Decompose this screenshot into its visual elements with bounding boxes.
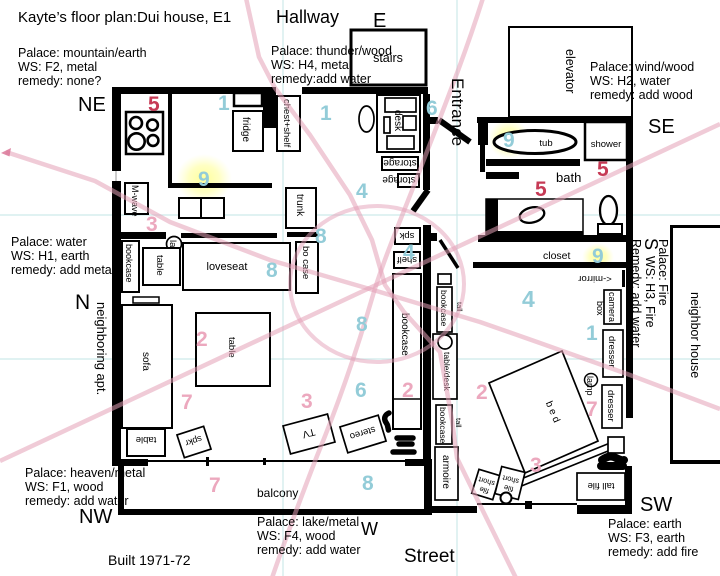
svg-text:elevator: elevator xyxy=(563,49,577,93)
svg-text:2: 2 xyxy=(476,381,488,404)
svg-text:Entrance: Entrance xyxy=(448,78,467,146)
svg-text:4: 4 xyxy=(356,180,368,203)
svg-text:Palace: thunder/wood: Palace: thunder/wood xyxy=(271,44,392,58)
svg-text:SW: SW xyxy=(640,494,672,516)
svg-text:2: 2 xyxy=(196,328,208,351)
svg-text:remedy: add water: remedy: add water xyxy=(257,543,361,557)
svg-text:1: 1 xyxy=(320,102,332,125)
svg-text:neighbor house: neighbor house xyxy=(688,292,702,378)
svg-text:4: 4 xyxy=(403,241,415,264)
svg-text:NW: NW xyxy=(79,506,112,528)
svg-text:8: 8 xyxy=(356,313,368,336)
svg-text:WS: F3, earth: WS: F3, earth xyxy=(608,531,685,545)
svg-text:9: 9 xyxy=(503,129,515,152)
svg-text:WS: H4, metal: WS: H4, metal xyxy=(271,58,352,72)
svg-text:loveseat: loveseat xyxy=(207,261,248,273)
svg-text:Palace: heaven/metal: Palace: heaven/metal xyxy=(25,466,145,480)
svg-text:WS: H3, Fire: WS: H3, Fire xyxy=(643,256,657,328)
svg-text:6: 6 xyxy=(355,379,367,402)
svg-text:3: 3 xyxy=(146,213,158,236)
svg-text:tall: tall xyxy=(454,418,463,428)
svg-text:lamp: lamp xyxy=(585,376,595,396)
svg-text:S: S xyxy=(641,238,661,250)
svg-text:dresser: dresser xyxy=(606,336,617,368)
svg-text:Palace: water: Palace: water xyxy=(11,235,87,249)
svg-text:remedy: add wood: remedy: add wood xyxy=(590,88,693,102)
svg-text:WS: F1, wood: WS: F1, wood xyxy=(25,480,104,494)
svg-text:7: 7 xyxy=(181,391,193,414)
svg-text:Palace: earth: Palace: earth xyxy=(608,517,682,531)
svg-text:SE: SE xyxy=(648,116,675,138)
svg-text:Street: Street xyxy=(404,546,455,567)
svg-text:bo case: bo case xyxy=(300,246,311,279)
svg-text:desk: desk xyxy=(392,110,403,132)
svg-text:2: 2 xyxy=(402,379,414,402)
svg-text:storage: storage xyxy=(382,174,416,185)
svg-text:neighboring apt.: neighboring apt. xyxy=(94,302,109,395)
svg-text:remedy: add metal: remedy: add metal xyxy=(11,263,115,277)
svg-text:remedy: add fire: remedy: add fire xyxy=(608,545,698,559)
svg-text:5: 5 xyxy=(597,158,609,181)
svg-text:N: N xyxy=(75,291,90,314)
svg-text:5: 5 xyxy=(535,178,547,201)
svg-text:E: E xyxy=(373,10,386,32)
svg-text:remedy:add water: remedy:add water xyxy=(271,72,371,86)
svg-text:8: 8 xyxy=(266,259,278,282)
svg-text:tub: tub xyxy=(539,138,552,149)
svg-text:Remedy: add water: Remedy: add water xyxy=(629,239,643,347)
svg-text:closet: closet xyxy=(543,250,571,262)
svg-text:Palace: lake/metal: Palace: lake/metal xyxy=(257,515,359,529)
svg-text:WS: H2, water: WS: H2, water xyxy=(590,74,671,88)
svg-text:9: 9 xyxy=(198,168,210,191)
svg-text:fridge: fridge xyxy=(240,117,251,142)
svg-text:6: 6 xyxy=(426,97,438,120)
svg-text:WS: F2, metal: WS: F2, metal xyxy=(18,60,97,74)
svg-text:table: table xyxy=(136,434,157,445)
svg-text:shower: shower xyxy=(591,139,622,150)
svg-text:1: 1 xyxy=(586,322,598,345)
svg-text:table: table xyxy=(154,255,165,276)
svg-text:remedy: add water: remedy: add water xyxy=(25,494,129,508)
svg-text:9: 9 xyxy=(592,245,604,268)
svg-text:5: 5 xyxy=(148,93,160,116)
svg-text:Built 1971-72: Built 1971-72 xyxy=(108,552,191,568)
svg-text:storage: storage xyxy=(383,157,417,168)
svg-text:armoire: armoire xyxy=(440,455,451,489)
svg-text:tall file: tall file xyxy=(588,480,615,491)
svg-text:camera: camera xyxy=(607,292,617,322)
svg-text:bookcase: bookcase xyxy=(438,407,448,444)
svg-text:7: 7 xyxy=(586,398,598,421)
svg-text:W: W xyxy=(361,519,378,539)
svg-text:trunk: trunk xyxy=(294,194,305,217)
svg-text:dresser: dresser xyxy=(605,390,616,422)
svg-text:Palace: mountain/earth: Palace: mountain/earth xyxy=(18,46,147,60)
svg-text:1: 1 xyxy=(218,92,230,115)
svg-text:remedy: none?: remedy: none? xyxy=(18,74,101,88)
svg-text:NE: NE xyxy=(78,94,106,116)
svg-text:sofa: sofa xyxy=(140,352,151,371)
svg-text:WS: H1, earth: WS: H1, earth xyxy=(11,249,90,263)
svg-text:Kayte’s floor plan:Dui house,: Kayte’s floor plan:Dui house, E1 xyxy=(18,9,231,26)
svg-text:8: 8 xyxy=(362,472,374,495)
svg-text:Hallway: Hallway xyxy=(276,7,339,27)
svg-text:WS: F4, wood: WS: F4, wood xyxy=(257,529,336,543)
svg-text:box: box xyxy=(595,301,605,316)
svg-text:4: 4 xyxy=(522,286,535,312)
svg-text:7: 7 xyxy=(209,474,221,497)
svg-text:bath: bath xyxy=(556,170,581,185)
svg-text:balcony: balcony xyxy=(257,486,298,500)
svg-text:spk: spk xyxy=(399,230,414,241)
svg-text:<-mirror: <-mirror xyxy=(578,273,612,284)
svg-text:3: 3 xyxy=(530,454,542,477)
svg-text:bookcase: bookcase xyxy=(124,244,134,283)
svg-text:Palace: wind/wood: Palace: wind/wood xyxy=(590,60,694,74)
svg-text:3: 3 xyxy=(301,390,313,413)
svg-text:8: 8 xyxy=(315,225,327,248)
